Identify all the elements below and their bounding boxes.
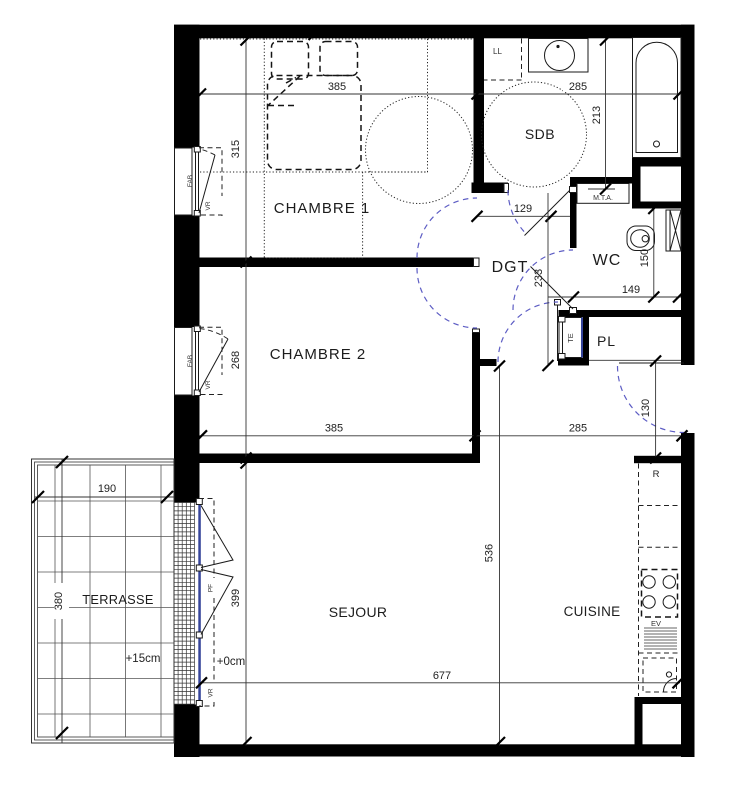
svg-text:CHAMBRE 1: CHAMBRE 1 [274,200,371,217]
svg-text:R: R [653,469,660,480]
svg-text:DGT: DGT [492,259,529,276]
svg-text:+0cm: +0cm [217,656,245,668]
svg-text:399: 399 [230,589,242,607]
svg-text:LL: LL [493,47,502,56]
svg-text:FAB: FAB [187,175,194,187]
svg-text:130: 130 [640,399,652,417]
svg-text:315: 315 [230,140,242,158]
svg-text:233: 233 [533,269,545,287]
svg-text:VR: VR [205,380,212,389]
svg-text:FAB: FAB [187,355,194,367]
svg-text:268: 268 [230,351,242,369]
svg-text:CUISINE: CUISINE [564,604,621,619]
svg-text:677: 677 [433,670,451,682]
svg-text:TE: TE [566,333,575,343]
svg-text:190: 190 [98,483,116,495]
svg-text:PL: PL [597,333,616,349]
svg-text:149: 149 [622,284,640,296]
svg-text:150: 150 [639,249,651,267]
svg-text:285: 285 [569,81,587,93]
svg-text:385: 385 [328,81,346,93]
svg-text:SEJOUR: SEJOUR [329,604,388,620]
svg-text:129: 129 [514,203,532,215]
svg-text:WC: WC [593,252,622,269]
svg-text:CHAMBRE 2: CHAMBRE 2 [270,346,367,363]
svg-text:EV: EV [651,619,661,628]
svg-text:PF: PF [208,584,215,592]
svg-text:TERRASSE: TERRASSE [82,592,153,607]
svg-text:M.T.A.: M.T.A. [593,195,613,202]
svg-text:VR: VR [205,201,212,210]
svg-text:SDB: SDB [525,126,555,142]
svg-text:213: 213 [591,106,603,124]
svg-text:VR: VR [208,688,215,697]
svg-text:536: 536 [484,544,496,562]
svg-text:+15cm: +15cm [126,653,161,665]
svg-text:385: 385 [325,423,343,435]
svg-text:285: 285 [569,423,587,435]
svg-text:380: 380 [53,592,65,610]
